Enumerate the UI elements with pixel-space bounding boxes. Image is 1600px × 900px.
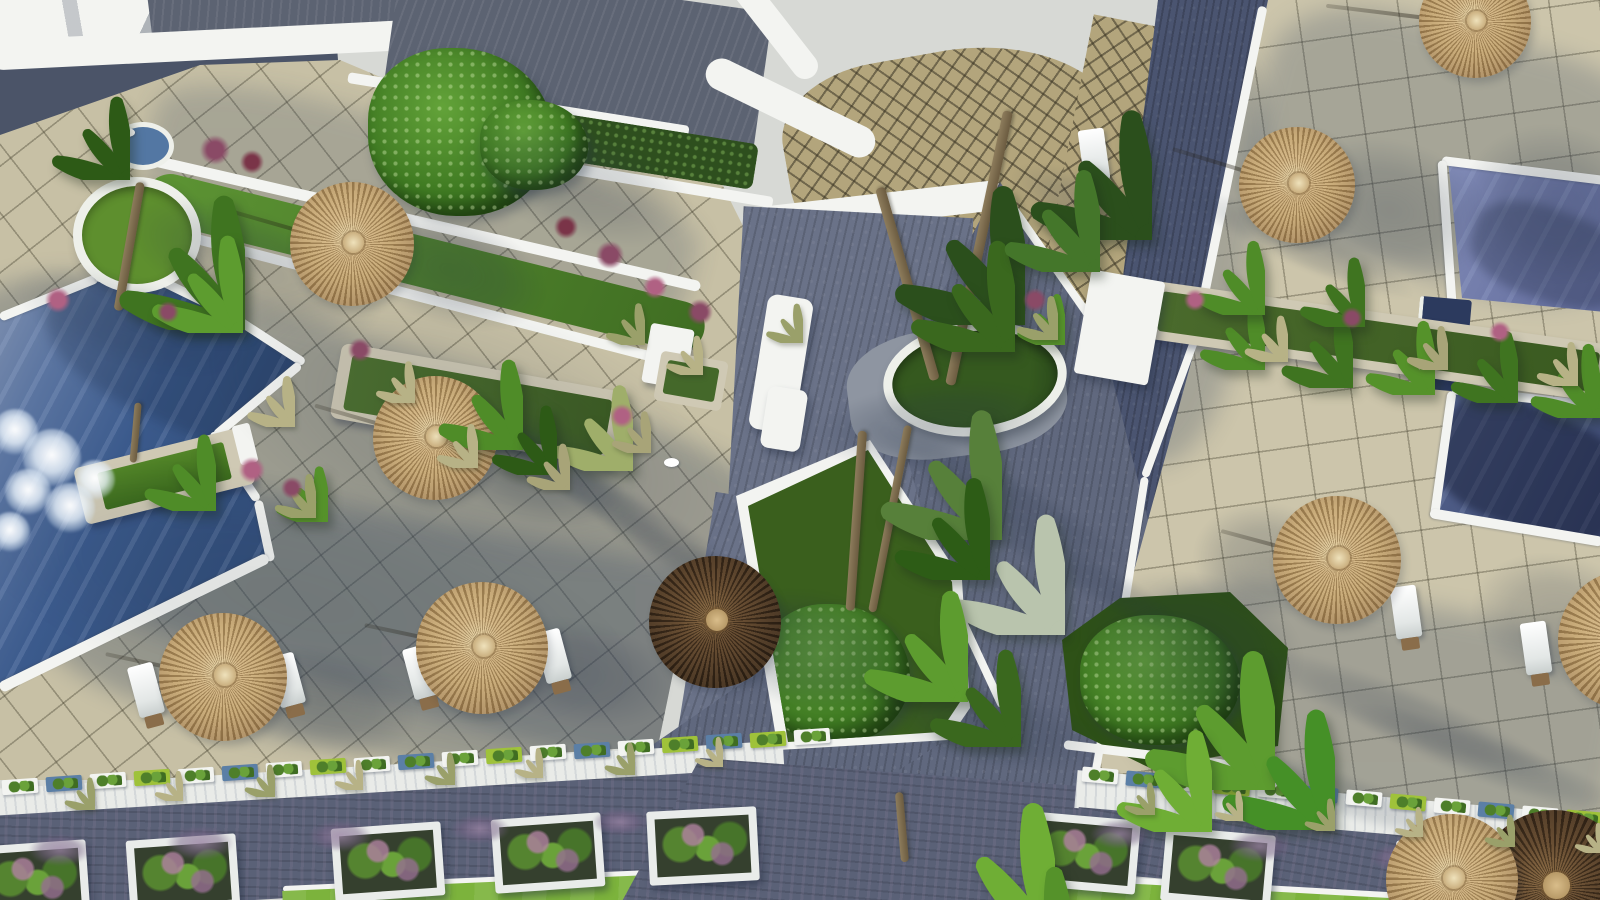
flower-clump	[1341, 307, 1363, 329]
thatch-umbrella	[1419, 0, 1531, 78]
grass-tuft	[205, 727, 275, 797]
grass-tuft	[718, 258, 803, 343]
props-layer	[0, 0, 1600, 900]
grass-tuft	[1358, 772, 1423, 837]
grass-tuft	[478, 713, 543, 778]
flower-clump	[1184, 289, 1206, 311]
grass-tuft	[658, 702, 723, 767]
flower-clump	[643, 275, 667, 299]
grass-tuft	[383, 373, 478, 468]
flower-clump	[157, 301, 179, 323]
flower-clump	[281, 477, 303, 499]
grass-tuft	[561, 363, 651, 453]
grass-tuft	[298, 725, 363, 790]
grass-tuft	[1353, 275, 1448, 370]
grass-tuft	[1538, 788, 1600, 853]
roadside-plant	[308, 820, 372, 852]
flower-clump	[554, 215, 578, 239]
flower-clump	[45, 287, 71, 313]
white-dove	[664, 458, 679, 467]
grass-tuft	[470, 390, 570, 490]
roadside-plant	[166, 826, 234, 860]
flower-clump	[1023, 288, 1047, 312]
flower-clump	[239, 457, 265, 483]
street-planter	[646, 806, 760, 886]
flower-clump	[1489, 321, 1511, 343]
grass-tuft	[221, 423, 316, 518]
roadside-plant	[450, 814, 510, 844]
grass-tuft	[118, 736, 183, 801]
grass-tuft	[185, 317, 295, 427]
grass-tuft	[565, 705, 635, 775]
sun-lounger	[1390, 584, 1423, 639]
flower-clump	[596, 241, 624, 269]
thatch-umbrella	[416, 582, 548, 714]
roadside-plant	[592, 808, 648, 836]
grass-tuft	[385, 715, 455, 785]
thatch-umbrella	[159, 613, 287, 741]
grass-tuft	[1445, 777, 1515, 847]
flower-clump	[610, 404, 634, 428]
resort-aerial-render	[0, 0, 1600, 900]
roadside-plant	[28, 834, 92, 866]
flower-clump	[687, 299, 713, 325]
grass-tuft	[1188, 262, 1288, 362]
grass-tuft	[1265, 761, 1335, 831]
flower-clump	[240, 150, 264, 174]
flower-clump	[200, 135, 230, 165]
palm-tree	[0, 0, 130, 180]
grass-tuft	[1085, 745, 1155, 815]
roadside-plant	[1228, 830, 1292, 862]
grass-tuft	[1178, 756, 1243, 821]
flower-clump	[348, 338, 372, 362]
grass-tuft	[25, 740, 95, 810]
